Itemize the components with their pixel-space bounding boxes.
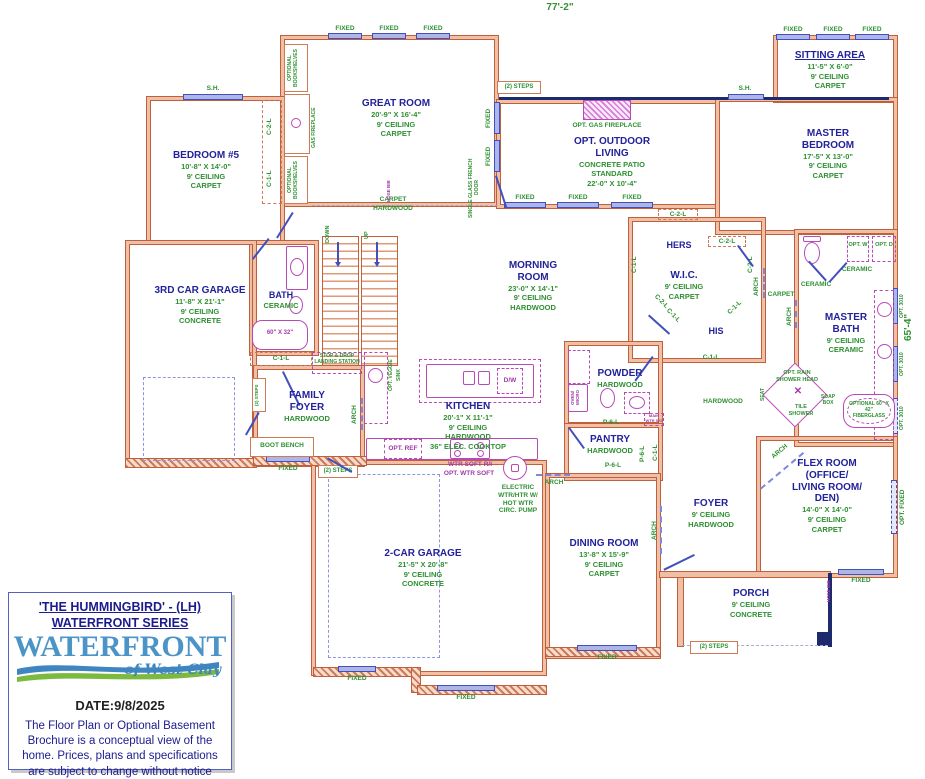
room-floor: CARPET: [786, 171, 870, 181]
room-floor: CONCRETE: [150, 316, 250, 326]
ceramic-label: CERAMIC: [794, 281, 838, 289]
down-arrow-line: [337, 242, 339, 262]
room-name: PANTRY: [584, 434, 636, 446]
opt-dryer-box: [872, 236, 896, 262]
room-name: POWDER: [594, 368, 646, 380]
wall-porch-left: [678, 576, 683, 646]
stair-run-down: [322, 236, 359, 366]
fixed-label: FIXED: [855, 26, 889, 34]
room-label-great-room: GREAT ROOM 20'-9" X 16'-4" 9' CEILING CA…: [352, 98, 440, 139]
closet-label: C-1-L: [266, 164, 275, 194]
fireplace-flue: [291, 118, 301, 128]
room-floor: CERAMIC: [810, 345, 882, 355]
window-fixed: [416, 33, 450, 39]
fixed-label: FIXED: [504, 194, 546, 202]
bookshelf-label: OPTIONAL BOOKSHELVES: [287, 158, 305, 202]
window-fixed: [855, 34, 889, 40]
label-his: HIS: [700, 326, 732, 337]
room-floor: CARPET: [794, 81, 866, 91]
pantry-shelf-label: P-6-L: [598, 462, 628, 470]
room-floor: CERAMIC: [250, 301, 312, 311]
room-label-pantry: PANTRY HARDWOOD: [584, 434, 636, 456]
opt-3010-label: OPT. 3010: [899, 398, 907, 438]
opt-dryer-label: OPT. D: [872, 242, 896, 249]
toilet: [600, 388, 615, 408]
title-block: 'THE HUMMINGBIRD' - (LH) WATERFRONT SERI…: [8, 592, 232, 770]
label-hers: HERS: [658, 240, 700, 251]
room-size: 11'-8" X 21'-1": [150, 297, 250, 307]
room-label-powder: POWDER HARDWOOD: [594, 368, 646, 390]
room-floor: HARDWOOD: [498, 303, 568, 313]
room-label-foyer: FOYER 9' CEILING HARDWOOD: [680, 498, 742, 529]
window-fixed: [611, 202, 653, 208]
room-name: OPT. OUTDOOR LIVING: [560, 136, 664, 160]
stairs-down-label: DOWN: [325, 218, 333, 250]
room-name: MORNING ROOM: [498, 260, 568, 284]
arch-opening: [795, 300, 797, 328]
room-note: CONCRETE PATIO STANDARD: [560, 160, 664, 180]
room-name: MASTER BATH: [810, 312, 882, 336]
porch-corner-post: [817, 632, 831, 646]
room-ceiling: 9' CEILING: [566, 560, 642, 570]
room-floor: CARPET: [352, 129, 440, 139]
fixed-label: FIXED: [557, 194, 599, 202]
closet-label: C-2-L: [658, 211, 698, 219]
wtr-soft-label: WTR SOFT R/I: [443, 461, 497, 468]
closet-label: C-1-L: [652, 438, 661, 468]
room-label-morning-room: MORNING ROOM 23'-0" X 14'-1" 9' CEILING …: [498, 260, 568, 313]
carpet-label: CARPET: [762, 291, 800, 299]
opt-washer-box: [847, 236, 869, 262]
room-size: 20'-1" X 11'-1": [430, 413, 506, 423]
steps-label: (2) STEPS: [254, 379, 264, 411]
shower-head-icon: ✕: [790, 386, 806, 398]
logo-tagline: of West Clay: [124, 662, 221, 678]
arch-label: ARCH: [540, 479, 568, 487]
arch-label: ARCH: [351, 402, 359, 428]
room-floor: HARDWOOD: [430, 432, 506, 442]
room-ceiling: 9' CEILING: [150, 307, 250, 317]
window-fixed: [338, 666, 376, 672]
room-ceiling: 9' CEILING: [430, 423, 506, 433]
fixed-label: FIXED: [816, 26, 850, 34]
room-ceiling: 9' CEILING: [498, 293, 568, 303]
oven-micro-label: OVEN/ MICRO: [570, 385, 586, 411]
closet-label: C-2-L: [708, 238, 746, 246]
window-fixed: [557, 202, 599, 208]
window-fixed: [577, 645, 637, 651]
window-fixed: [816, 34, 850, 40]
room-ceiling: 9' CEILING: [680, 510, 742, 520]
window-opt-fixed: [891, 480, 897, 534]
room-label-outdoor-living: OPT. OUTDOOR LIVING CONCRETE PATIO STAND…: [560, 136, 664, 189]
room-size: 21'-5" X 20'-8": [378, 560, 468, 570]
window-fixed: [776, 34, 810, 40]
plan-name: 'THE HUMMINGBIRD' - (LH): [9, 600, 231, 614]
opt-wtr-soft-label: OPT. WTR SOFT: [441, 470, 497, 477]
french-door-label: SINGLE GLASS FRENCH DOOR: [468, 158, 486, 218]
room-extra: 36" ELEC. COOKTOP: [430, 442, 506, 452]
soap-box-label: SOAP BOX: [816, 394, 840, 406]
room-name: FAMILY FOYER: [276, 390, 338, 414]
kitchen-sink-basin: [478, 371, 490, 385]
fixed-label: FIXED: [437, 694, 495, 702]
room-name: 3RD CAR GARAGE: [150, 285, 250, 297]
room-floor: CONCRETE: [378, 579, 468, 589]
room-name: BATH: [250, 290, 312, 301]
room-floor: CARPET: [790, 525, 864, 535]
his-label: HIS: [700, 326, 732, 337]
room-label-master-bedroom: MASTER BEDROOM 17'-5" X 13'-0" 9' CEILIN…: [786, 128, 870, 181]
main-shutoff-label: MAIN WTR S/O: [644, 414, 664, 423]
toilet-tank: [803, 236, 821, 242]
room-name: GREAT ROOM: [352, 98, 440, 110]
room-ceiling: 9' CEILING: [794, 72, 866, 82]
bath-closet-label: C-1-L: [250, 355, 312, 363]
room-name: BEDROOM #5: [162, 150, 250, 162]
powder-sink: [629, 396, 645, 409]
veggie-sink-bowl: [368, 368, 383, 383]
window-fixed: [494, 102, 500, 134]
fixed-label: FIXED: [328, 25, 362, 33]
opt-gas-fireplace: [583, 100, 631, 120]
room-label-bedroom5: BEDROOM #5 10'-8" X 14'-0" 9' CEILING CA…: [162, 150, 250, 191]
fixed-label: FIXED: [838, 577, 884, 585]
room-ceiling: 9' CEILING: [790, 515, 864, 525]
room-floor: CARPET: [656, 292, 712, 302]
hardwood-label: HARDWOOD: [698, 398, 748, 406]
room-label-family-foyer: FAMILY FOYER HARDWOOD: [276, 390, 338, 423]
logo-wordmark: WATERFRONT: [9, 632, 231, 662]
seat-label: SEAT: [760, 382, 768, 408]
tile-shower-label: TILE SHOWER: [784, 404, 818, 417]
bath-sink: [290, 258, 304, 276]
room-label-dining-room: DINING ROOM 13'-8" X 15'-9" 9' CEILING C…: [566, 538, 642, 579]
room-floor: CARPET: [566, 569, 642, 579]
arch-label: ARCH: [753, 274, 761, 300]
fixed-label: FIXED: [416, 25, 450, 33]
pantry-shelf-label: P-6-L: [639, 440, 648, 468]
up-arrow-head: [374, 262, 380, 270]
room-label-porch: PORCH 9' CEILING CONCRETE: [706, 588, 796, 619]
closet-label: C-2-L: [266, 112, 275, 142]
room-size: 10'-8" X 14'-0": [162, 162, 250, 172]
window-fixed: [328, 33, 362, 39]
dishwasher-label: D/W: [497, 377, 523, 384]
room-name: FOYER: [680, 498, 742, 510]
veggie-sink-cabinet: [364, 352, 388, 424]
stairs-up-label: UP: [364, 222, 372, 248]
room-ceiling: 9' CEILING: [706, 600, 796, 610]
room-floor: HARDWOOD: [594, 380, 646, 390]
opt-washer-label: OPT. W: [847, 242, 869, 249]
room-size: 23'-0" X 14'-1": [498, 284, 568, 294]
room-name: MASTER BEDROOM: [786, 128, 870, 152]
room-floor: HARDWOOD: [680, 520, 742, 530]
sh-label: S.H.: [730, 85, 760, 93]
garage3-pad-outline: [143, 377, 235, 461]
closet-label: C-1-L: [694, 354, 728, 362]
room-name: W.I.C.: [656, 270, 712, 282]
fixed-label: FIXED: [338, 675, 376, 683]
arch-label: ARCH: [786, 304, 794, 330]
fixed-label: FIXED: [776, 26, 810, 34]
disclaimer-text: The Floor Plan or Optional Basement Broc…: [15, 719, 225, 779]
front-door: [663, 554, 694, 571]
fixed-label: FIXED: [577, 654, 637, 662]
rain-shower-label: OPT. RAIN SHOWER HEAD: [776, 370, 818, 383]
boot-bench-label: BOOT BENCH: [250, 442, 314, 450]
sink-label: SINK: [396, 362, 404, 388]
hers-label: HERS: [658, 240, 700, 251]
room-size: 11'-5" X 6'-0": [794, 62, 866, 72]
plan-date: DATE:9/8/2025: [9, 698, 231, 713]
room-label-3rd-car-garage: 3RD CAR GARAGE 11'-8" X 21'-1" 9' CEILIN…: [150, 285, 250, 326]
fixed-label: FIXED: [611, 194, 653, 202]
room-floor: HARDWOOD: [276, 414, 338, 424]
room-size: 14'-0" X 14'-0": [790, 505, 864, 515]
outdoor-living-roof-line: [499, 97, 889, 100]
closet-label: C-1-L: [631, 250, 640, 280]
hose-bib-label: HOSE BIB: [386, 178, 394, 204]
hose-bib-label: HOSE BIB: [826, 578, 834, 604]
room-ceiling: 9' CEILING: [810, 336, 882, 346]
room-floor: HARDWOOD: [584, 446, 636, 456]
room-name: FLEX ROOM (OFFICE/ LIVING ROOM/ DEN): [790, 458, 864, 505]
fixed-label: FIXED: [485, 142, 493, 170]
arch-label: ARCH: [651, 518, 659, 544]
room-ceiling: 9' CEILING: [162, 172, 250, 182]
window-fixed: [494, 140, 500, 172]
window-fixed: [372, 33, 406, 39]
arch-opening: [660, 506, 662, 554]
steps-label: (2) STEPS: [690, 644, 738, 651]
water-heater-label: ELECTRIC WTR/HTR W/ HOT WTR CIRC. PUMP: [496, 484, 540, 515]
pantry-shelf-label: P-6-L: [596, 419, 626, 427]
window-fixed: [504, 202, 546, 208]
sh-label: S.H.: [196, 85, 230, 93]
steps-label: (2) STEPS: [497, 84, 541, 91]
opt-tub-label: OPTIONAL 60" X 42" FIBERGLASS: [849, 401, 889, 419]
room-label-kitchen: KITCHEN 20'-1" X 11'-1" 9' CEILING HARDW…: [430, 401, 506, 452]
up-arrow-line: [376, 242, 378, 262]
room-label-sitting-area: SITTING AREA 11'-5" X 6'-0" 9' CEILING C…: [794, 50, 866, 91]
room-ceiling: 9' CEILING: [656, 282, 712, 292]
opt-fixed-label: OPT. FIXED: [899, 482, 907, 532]
window-fixed: [437, 685, 495, 691]
room-name: SITTING AREA: [794, 50, 866, 62]
room-label-2-car-garage: 2-CAR GARAGE 21'-5" X 20'-8" 9' CEILING …: [378, 548, 468, 589]
gas-fireplace-label: GAS FIREPLACE: [311, 100, 320, 156]
room-label-bath: BATH CERAMIC: [250, 290, 312, 310]
fixed-label: FIXED: [485, 104, 493, 132]
room-ceiling: 9' CEILING: [352, 120, 440, 130]
down-arrow-head: [335, 262, 341, 270]
room-label-wic: W.I.C. 9' CEILING CARPET: [656, 270, 712, 301]
tub-size-label: 60" X 32": [258, 330, 302, 337]
toilet: [804, 242, 820, 264]
bookshelf-label: OPTIONAL BOOKSHELVES: [287, 46, 305, 90]
room-name: KITCHEN: [430, 401, 506, 413]
room-name: DINING ROOM: [566, 538, 642, 550]
room-size: 17'-5" X 13'-0": [786, 152, 870, 162]
stair-run-up: [361, 236, 398, 366]
opt-ref-label: OPT. REF: [384, 445, 422, 452]
series-name: WATERFRONT SERIES: [9, 616, 231, 630]
veggie-sink-label: OPT. VEGGIE: [388, 353, 396, 397]
fixed-label: FIXED: [266, 465, 310, 473]
waterfront-logo: WATERFRONT of West Clay: [9, 632, 231, 696]
opt-3010-label: OPT. 3010: [899, 286, 907, 326]
stop-drop-label: STOP & DROP LANDING STATION: [312, 353, 362, 365]
room-floor: CONCRETE: [706, 610, 796, 620]
room-size: 22'-0" X 10'-4": [560, 179, 664, 189]
water-softener-core: [511, 464, 519, 472]
window-fixed: [838, 569, 884, 575]
hardwood-transition-label: HARDWOOD: [370, 205, 416, 213]
opt-3010-label: OPT. 3010: [899, 344, 907, 384]
room-ceiling: 9' CEILING: [378, 570, 468, 580]
room-size: 20'-9" X 16'-4": [352, 110, 440, 120]
window-single-hung: [183, 94, 243, 100]
wall-foyer-bottom: [660, 572, 830, 577]
opt-gas-fireplace-label: OPT. GAS FIREPLACE: [566, 122, 648, 130]
arch-opening: [361, 398, 363, 430]
room-name: PORCH: [706, 588, 796, 600]
room-name: 2-CAR GARAGE: [378, 548, 468, 560]
arch-opening: [536, 474, 570, 476]
floor-plan-page: 77'-2" 65'-4" CARPET HARDWOOD DOWN UP ST…: [0, 0, 925, 779]
powder-cabinet: [568, 350, 590, 384]
overall-width-dimension: 77'-2": [515, 2, 605, 13]
window-single-hung: [728, 94, 764, 100]
room-label-flex-room: FLEX ROOM (OFFICE/ LIVING ROOM/ DEN) 14'…: [790, 458, 864, 534]
fixed-label: FIXED: [372, 25, 406, 33]
room-floor: CARPET: [162, 181, 250, 191]
room-ceiling: 9' CEILING: [786, 161, 870, 171]
room-size: 13'-8" X 15'-9": [566, 550, 642, 560]
kitchen-sink-basin: [463, 371, 475, 385]
room-label-master-bath: MASTER BATH 9' CEILING CERAMIC: [810, 312, 882, 355]
